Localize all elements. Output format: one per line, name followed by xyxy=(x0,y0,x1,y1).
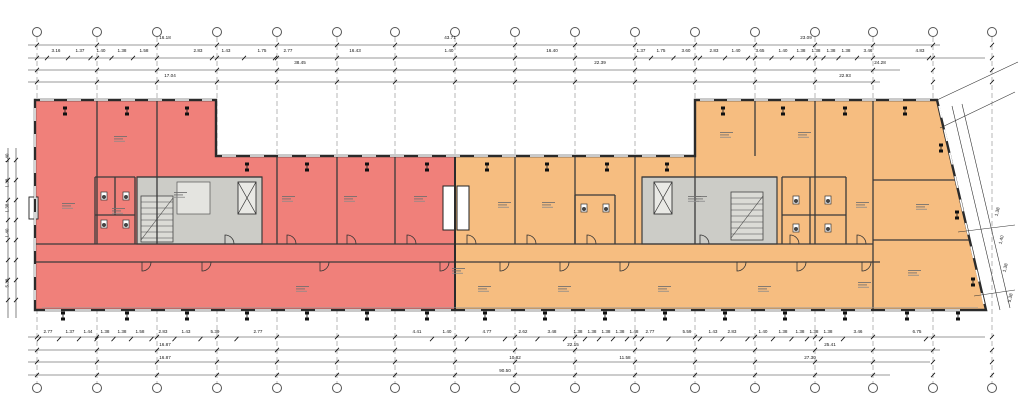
grid-bubble xyxy=(751,28,760,37)
grid-bubble xyxy=(571,28,580,37)
grid-bubble xyxy=(571,384,580,393)
grid-bubble xyxy=(451,28,460,37)
grid-bubble xyxy=(988,384,997,393)
grid-bubble xyxy=(273,28,282,37)
grid-bubble xyxy=(631,28,640,37)
grid-bubble xyxy=(33,28,42,37)
elevator-west xyxy=(238,182,256,214)
grid-bubble xyxy=(929,28,938,37)
grid-bubble xyxy=(333,28,342,37)
grid-bubble xyxy=(691,28,700,37)
grid-bubble xyxy=(511,384,520,393)
grid-bubble xyxy=(213,384,222,393)
grid-bubble xyxy=(213,28,222,37)
grid-bubble xyxy=(391,28,400,37)
grid-bubble xyxy=(631,384,640,393)
grid-bubble xyxy=(869,384,878,393)
core-west-room xyxy=(177,182,210,214)
stair-east xyxy=(731,192,763,240)
elevator-east xyxy=(654,182,672,214)
grid-bubble xyxy=(333,384,342,393)
grid-bubble xyxy=(929,384,938,393)
grid-bubble xyxy=(988,28,997,37)
grid-bubble xyxy=(511,28,520,37)
west-entry-door xyxy=(29,197,38,219)
grid-bubble xyxy=(691,384,700,393)
grid-bubble xyxy=(391,384,400,393)
floor-plan-canvas xyxy=(0,0,1024,407)
grid-bubble xyxy=(93,384,102,393)
grid-bubble xyxy=(451,384,460,393)
floor-plan-sheet: 16.1843.7123.093.161.371.401.381.582.831… xyxy=(0,0,1024,407)
grid-bubble xyxy=(869,28,878,37)
grid-bubble xyxy=(33,384,42,393)
grid-bubble xyxy=(153,28,162,37)
grid-bubble xyxy=(811,384,820,393)
grid-bubble xyxy=(273,384,282,393)
grid-bubble xyxy=(811,28,820,37)
grid-bubble xyxy=(153,384,162,393)
grid-bubble xyxy=(751,384,760,393)
grid-bubble xyxy=(93,28,102,37)
